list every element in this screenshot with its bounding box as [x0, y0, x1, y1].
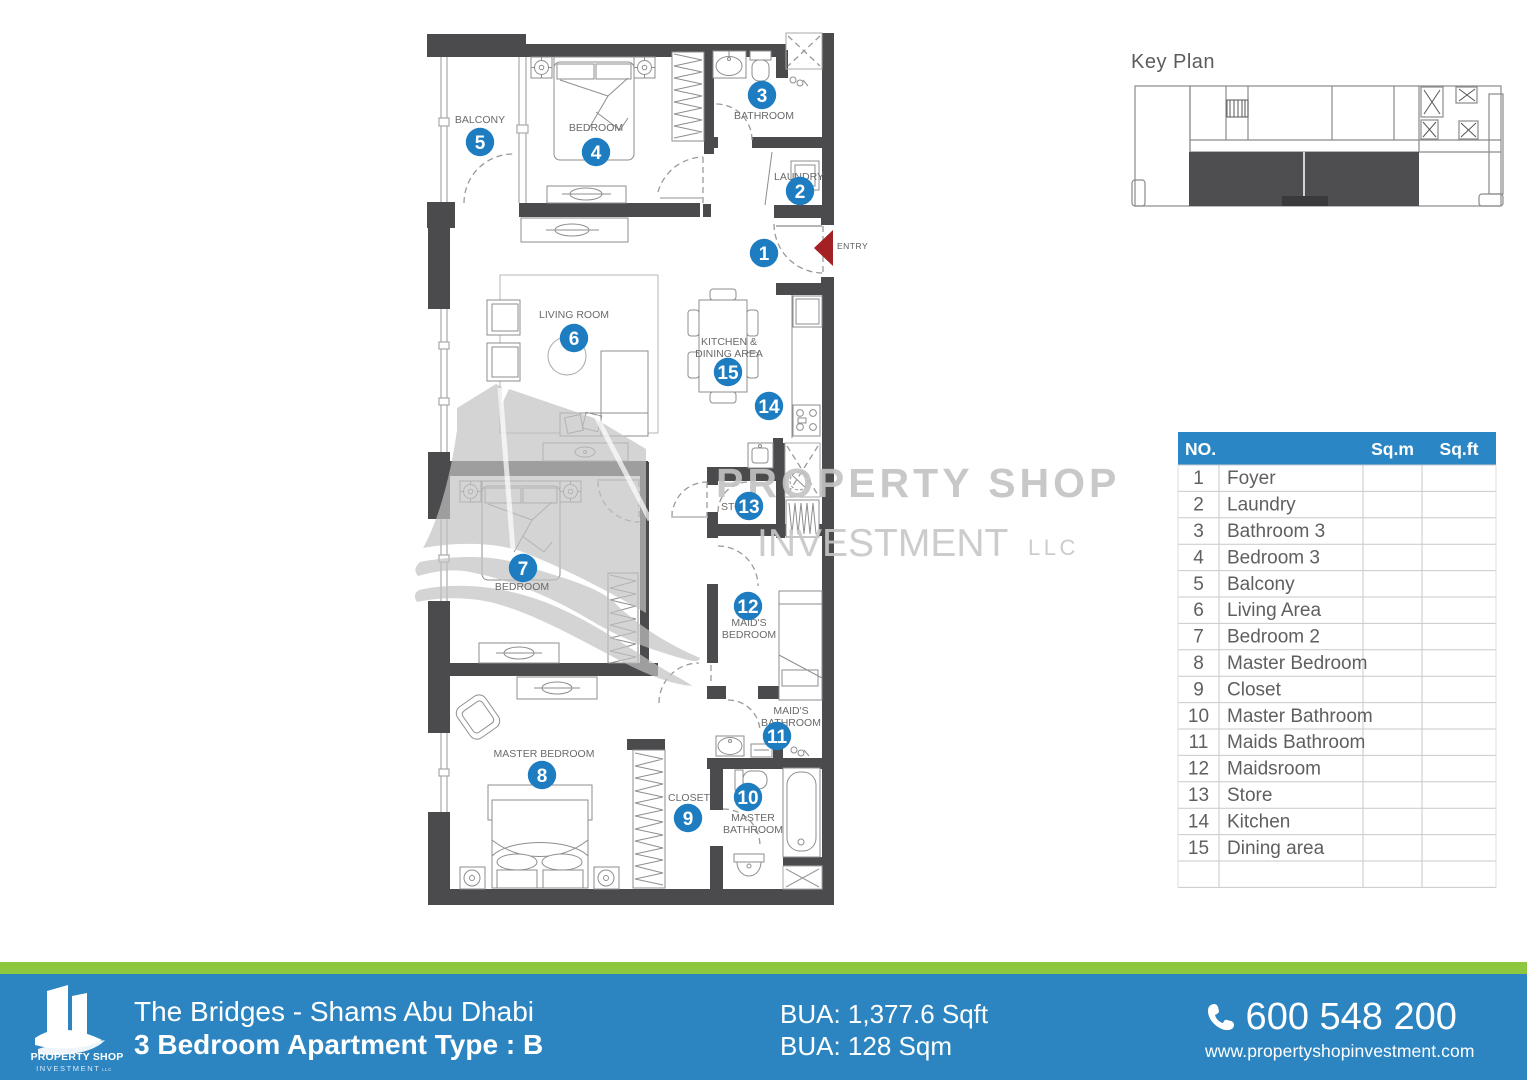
svg-text:Foyer: Foyer: [1227, 468, 1276, 489]
svg-text:Bedroom 2: Bedroom 2: [1227, 627, 1320, 648]
svg-text:Living Area: Living Area: [1227, 600, 1321, 621]
svg-text:INVESTMENT LLC: INVESTMENT LLC: [36, 1064, 112, 1073]
svg-text:8: 8: [1193, 653, 1204, 674]
svg-text:1: 1: [1193, 468, 1204, 489]
svg-text:2: 2: [1193, 495, 1204, 516]
svg-text:Bedroom 3: Bedroom 3: [1227, 547, 1320, 568]
svg-text:14: 14: [1188, 811, 1210, 832]
svg-text:Master Bathroom: Master Bathroom: [1227, 706, 1373, 727]
svg-text:Sq.m: Sq.m: [1371, 439, 1414, 459]
svg-text:Dining area: Dining area: [1227, 838, 1325, 859]
svg-text:9: 9: [1193, 679, 1204, 700]
svg-text:11: 11: [1189, 732, 1209, 753]
svg-text:13: 13: [1188, 785, 1209, 806]
svg-text:15: 15: [1188, 838, 1209, 859]
svg-text:Closet: Closet: [1227, 679, 1282, 700]
svg-text:Maidsroom: Maidsroom: [1227, 759, 1321, 780]
svg-text:Balcony: Balcony: [1227, 574, 1295, 595]
svg-text:7: 7: [1193, 627, 1204, 648]
svg-text:5: 5: [1193, 574, 1204, 595]
svg-text:12: 12: [1188, 759, 1209, 780]
svg-text:Maids Bathroom: Maids Bathroom: [1227, 732, 1365, 753]
svg-text:4: 4: [1193, 547, 1204, 568]
svg-text:Laundry: Laundry: [1227, 495, 1296, 516]
svg-text:PROPERTY SHOP: PROPERTY SHOP: [31, 1051, 124, 1063]
svg-text:3: 3: [1193, 521, 1204, 542]
svg-text:Sq.ft: Sq.ft: [1440, 439, 1479, 459]
svg-text:Bathroom 3: Bathroom 3: [1227, 521, 1325, 542]
svg-text:NO.: NO.: [1185, 439, 1216, 459]
svg-text:6: 6: [1193, 600, 1204, 621]
svg-text:Store: Store: [1227, 785, 1272, 806]
svg-text:Master Bedroom: Master Bedroom: [1227, 653, 1367, 674]
svg-text:10: 10: [1188, 706, 1209, 727]
svg-text:Kitchen: Kitchen: [1227, 811, 1290, 832]
